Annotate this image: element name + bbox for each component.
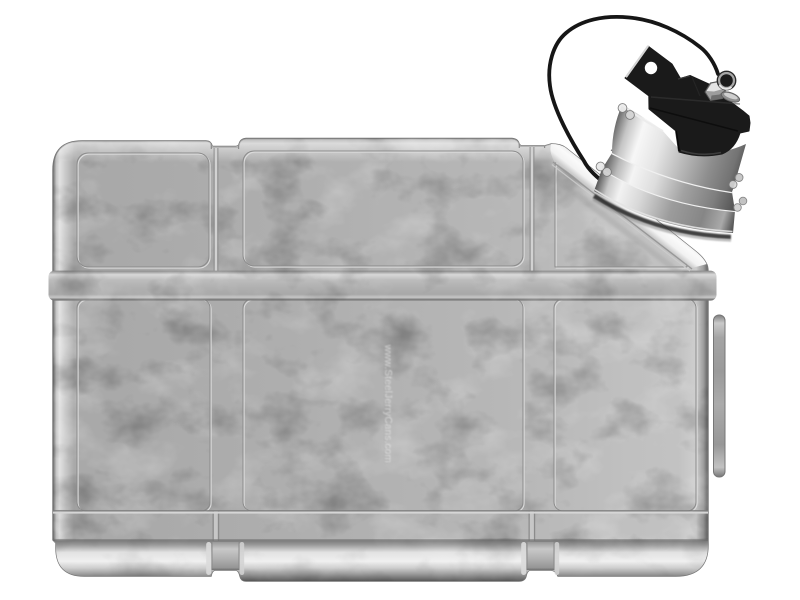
svg-text:www.SteelJerryCans.com: www.SteelJerryCans.com bbox=[381, 345, 392, 464]
